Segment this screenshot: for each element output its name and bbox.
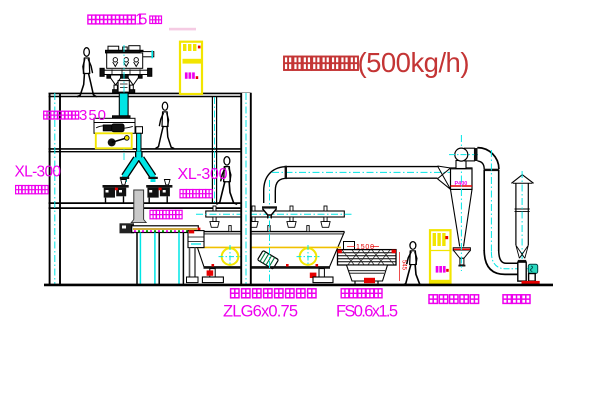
svg-text:1500: 1500	[356, 244, 374, 251]
svg-text:XL-300: XL-300	[15, 164, 62, 181]
svg-text:ZLG6x0.75: ZLG6x0.75	[223, 303, 298, 321]
svg-text:XL-300: XL-300	[178, 166, 228, 183]
svg-text:350: 350	[79, 107, 106, 124]
svg-text:FS0.6x1.5: FS0.6x1.5	[336, 303, 398, 321]
svg-text:(500kg/h): (500kg/h)	[358, 47, 470, 78]
svg-text:545: 545	[401, 260, 407, 271]
svg-text:1.5: 1.5	[135, 12, 147, 29]
